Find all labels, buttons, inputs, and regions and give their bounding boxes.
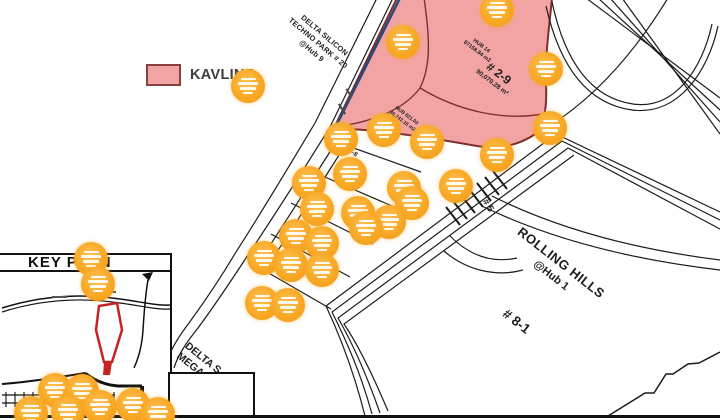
list-lines-icon xyxy=(151,406,166,409)
list-lines-icon xyxy=(398,48,408,51)
list-lines-icon xyxy=(238,82,258,85)
list-lines-icon xyxy=(404,204,420,207)
listing-cluster-marker[interactable] xyxy=(324,122,358,156)
list-lines-icon xyxy=(312,215,322,218)
list-lines-icon xyxy=(240,87,256,90)
list-lines-icon xyxy=(312,239,332,242)
blank-label-box xyxy=(168,372,255,417)
list-lines-icon xyxy=(487,6,507,9)
list-lines-icon xyxy=(23,414,39,417)
list-lines-icon xyxy=(419,143,435,146)
list-lines-icon xyxy=(490,2,505,5)
listing-cluster-marker[interactable] xyxy=(386,25,420,59)
key-plan-site-outline xyxy=(96,303,122,362)
listing-cluster-marker[interactable] xyxy=(529,52,563,86)
list-lines-icon xyxy=(317,276,327,279)
list-lines-icon xyxy=(241,78,256,81)
list-lines-icon xyxy=(310,201,325,204)
list-lines-icon xyxy=(359,220,374,223)
kavling-swatch xyxy=(146,64,181,86)
listing-cluster-marker[interactable] xyxy=(83,390,117,420)
list-lines-icon xyxy=(81,255,101,258)
listing-cluster-marker[interactable] xyxy=(533,111,567,145)
listing-cluster-marker[interactable] xyxy=(81,267,115,301)
list-lines-icon xyxy=(345,180,355,183)
list-lines-icon xyxy=(92,408,108,411)
list-lines-icon xyxy=(252,299,272,302)
list-lines-icon xyxy=(58,408,78,411)
list-lines-icon xyxy=(361,234,371,237)
list-lines-icon xyxy=(259,264,269,267)
list-lines-icon xyxy=(538,70,554,73)
list-lines-icon xyxy=(381,223,397,226)
listing-cluster-marker[interactable] xyxy=(274,248,308,282)
list-lines-icon xyxy=(379,136,389,139)
list-lines-icon xyxy=(88,280,108,283)
listing-cluster-marker[interactable] xyxy=(480,138,514,172)
list-lines-icon xyxy=(489,156,505,159)
list-lines-icon xyxy=(150,415,166,418)
list-lines-icon xyxy=(542,129,558,132)
list-lines-icon xyxy=(407,209,417,212)
list-lines-icon xyxy=(123,401,143,404)
listing-cluster-marker[interactable] xyxy=(231,69,265,103)
list-lines-icon xyxy=(90,285,106,288)
list-lines-icon xyxy=(286,232,306,235)
list-lines-icon xyxy=(61,404,76,407)
list-lines-icon xyxy=(536,65,556,68)
list-lines-icon xyxy=(487,151,507,154)
list-lines-icon xyxy=(301,184,317,187)
list-lines-icon xyxy=(307,205,327,208)
list-lines-icon xyxy=(280,306,296,309)
list-lines-icon xyxy=(243,92,253,95)
list-lines-icon xyxy=(490,147,505,150)
list-lines-icon xyxy=(309,210,325,213)
list-lines-icon xyxy=(377,122,392,125)
list-lines-icon xyxy=(126,397,141,400)
list-lines-icon xyxy=(125,406,141,409)
list-lines-icon xyxy=(72,387,92,390)
listing-cluster-marker[interactable] xyxy=(271,288,305,322)
list-lines-icon xyxy=(304,189,314,192)
list-lines-icon xyxy=(317,249,327,252)
list-lines-icon xyxy=(299,179,319,182)
list-lines-icon xyxy=(281,297,296,300)
list-lines-icon xyxy=(281,261,301,264)
list-lines-icon xyxy=(402,199,422,202)
list-lines-icon xyxy=(93,399,108,402)
list-lines-icon xyxy=(340,170,360,173)
list-lines-icon xyxy=(95,413,105,416)
list-lines-icon xyxy=(331,135,351,138)
list-lines-icon xyxy=(451,192,461,195)
list-lines-icon xyxy=(283,311,293,314)
list-lines-icon xyxy=(93,290,103,293)
list-lines-icon xyxy=(395,43,411,46)
list-lines-icon xyxy=(254,304,270,307)
list-lines-icon xyxy=(374,126,394,129)
list-lines-icon xyxy=(289,228,304,231)
list-lines-icon xyxy=(343,166,358,169)
list-lines-icon xyxy=(84,251,99,254)
list-lines-icon xyxy=(417,138,437,141)
list-lines-icon xyxy=(334,131,349,134)
list-lines-icon xyxy=(541,75,551,78)
masterplan-map: DELTA SILICON TECHNO PARK # 20 @Hub 9 HU… xyxy=(0,0,720,420)
list-lines-icon xyxy=(75,383,90,386)
list-lines-icon xyxy=(446,182,466,185)
listing-cluster-marker[interactable] xyxy=(349,211,383,245)
list-lines-icon xyxy=(449,178,464,181)
list-lines-icon xyxy=(356,224,376,227)
list-lines-icon xyxy=(336,145,346,148)
list-lines-icon xyxy=(284,257,299,260)
list-lines-icon xyxy=(83,260,99,263)
listing-cluster-marker[interactable] xyxy=(333,157,367,191)
list-lines-icon xyxy=(257,309,267,312)
list-lines-icon xyxy=(90,403,110,406)
list-lines-icon xyxy=(91,276,106,279)
list-lines-icon xyxy=(492,16,502,19)
list-lines-icon xyxy=(405,195,420,198)
list-lines-icon xyxy=(257,250,272,253)
list-lines-icon xyxy=(314,271,330,274)
list-lines-icon xyxy=(358,229,374,232)
list-lines-icon xyxy=(128,411,138,414)
list-lines-icon xyxy=(540,124,560,127)
list-lines-icon xyxy=(315,262,330,265)
list-lines-icon xyxy=(448,187,464,190)
listing-cluster-marker[interactable] xyxy=(367,113,401,147)
list-lines-icon xyxy=(47,391,63,394)
listing-cluster-marker[interactable] xyxy=(410,125,444,159)
list-lines-icon xyxy=(397,180,412,183)
list-lines-icon xyxy=(342,175,358,178)
listing-cluster-marker[interactable] xyxy=(305,253,339,287)
list-lines-icon xyxy=(351,205,366,208)
list-lines-icon xyxy=(393,38,413,41)
list-lines-icon xyxy=(382,214,397,217)
list-lines-icon xyxy=(396,34,411,37)
key-plan-site-fill xyxy=(103,362,112,375)
list-lines-icon xyxy=(422,148,432,151)
list-lines-icon xyxy=(333,140,349,143)
list-lines-icon xyxy=(312,266,332,269)
list-lines-icon xyxy=(291,242,301,245)
list-lines-icon xyxy=(543,120,558,123)
list-lines-icon xyxy=(256,259,272,262)
list-lines-icon xyxy=(254,254,274,257)
list-lines-icon xyxy=(492,161,502,164)
list-lines-icon xyxy=(376,131,392,134)
list-lines-icon xyxy=(545,134,555,137)
list-lines-icon xyxy=(286,271,296,274)
list-lines-icon xyxy=(148,410,168,413)
north-arrow-icon xyxy=(142,272,153,281)
list-lines-icon xyxy=(288,237,304,240)
list-lines-icon xyxy=(489,11,505,14)
list-lines-icon xyxy=(315,235,330,238)
list-lines-icon xyxy=(283,266,299,269)
listing-cluster-marker[interactable] xyxy=(439,169,473,203)
list-lines-icon xyxy=(255,295,270,298)
list-lines-icon xyxy=(48,382,63,385)
list-lines-icon xyxy=(45,386,65,389)
list-lines-icon xyxy=(384,228,394,231)
list-lines-icon xyxy=(314,244,330,247)
list-lines-icon xyxy=(60,413,76,416)
list-lines-icon xyxy=(278,301,298,304)
list-lines-icon xyxy=(302,175,317,178)
list-lines-icon xyxy=(539,61,554,64)
list-lines-icon xyxy=(21,409,41,412)
list-lines-icon xyxy=(24,405,39,408)
list-lines-icon xyxy=(379,218,399,221)
list-lines-icon xyxy=(420,134,435,137)
